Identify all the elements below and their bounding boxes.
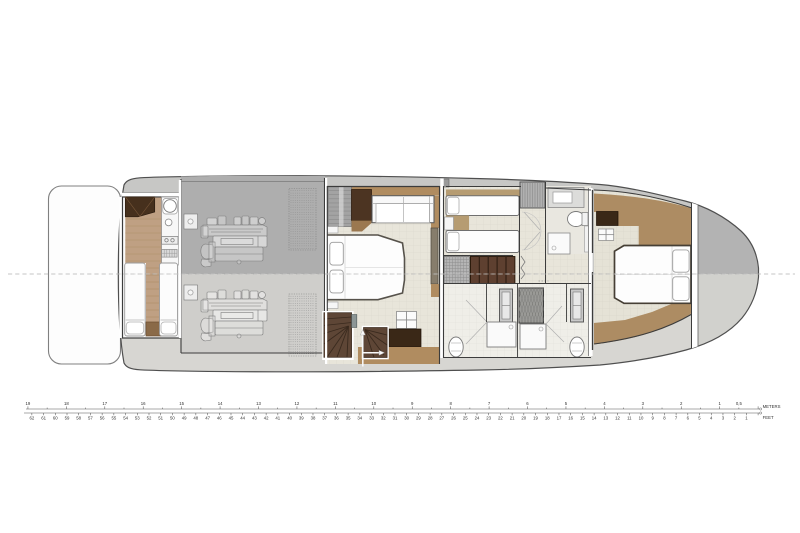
svg-text:34: 34 — [357, 416, 362, 421]
svg-text:26: 26 — [451, 416, 456, 421]
svg-text:13: 13 — [256, 401, 261, 406]
svg-text:33: 33 — [369, 416, 374, 421]
svg-text:52: 52 — [147, 416, 152, 421]
svg-text:48: 48 — [193, 416, 198, 421]
svg-text:53: 53 — [135, 416, 140, 421]
svg-text:44: 44 — [240, 416, 245, 421]
svg-text:METERS: METERS — [763, 404, 781, 409]
svg-text:61: 61 — [41, 416, 46, 421]
svg-text:12: 12 — [295, 401, 300, 406]
svg-text:51: 51 — [158, 416, 163, 421]
svg-text:19: 19 — [533, 416, 538, 421]
svg-text:37: 37 — [322, 416, 327, 421]
svg-text:29: 29 — [416, 416, 421, 421]
svg-text:42: 42 — [264, 416, 269, 421]
svg-text:18: 18 — [545, 416, 550, 421]
svg-text:17: 17 — [557, 416, 562, 421]
svg-text:20: 20 — [521, 416, 526, 421]
svg-text:41: 41 — [275, 416, 280, 421]
svg-text:58: 58 — [76, 416, 81, 421]
svg-text:27: 27 — [439, 416, 444, 421]
svg-text:28: 28 — [428, 416, 433, 421]
svg-text:39: 39 — [299, 416, 304, 421]
svg-text:36: 36 — [334, 416, 339, 421]
svg-text:38: 38 — [311, 416, 316, 421]
svg-text:45: 45 — [229, 416, 234, 421]
svg-text:46: 46 — [217, 416, 222, 421]
svg-text:17: 17 — [102, 401, 107, 406]
svg-text:56: 56 — [100, 416, 105, 421]
svg-text:18: 18 — [64, 401, 69, 406]
svg-text:32: 32 — [381, 416, 386, 421]
svg-text:25: 25 — [463, 416, 468, 421]
svg-text:19: 19 — [26, 401, 31, 406]
svg-text:15: 15 — [179, 401, 184, 406]
svg-text:50: 50 — [170, 416, 175, 421]
svg-text:15: 15 — [580, 416, 585, 421]
svg-text:62: 62 — [30, 416, 35, 421]
svg-text:10: 10 — [371, 401, 376, 406]
svg-text:47: 47 — [205, 416, 210, 421]
svg-text:16: 16 — [141, 401, 146, 406]
svg-text:59: 59 — [65, 416, 70, 421]
svg-text:14: 14 — [592, 416, 597, 421]
svg-text:40: 40 — [287, 416, 292, 421]
svg-text:14: 14 — [218, 401, 223, 406]
svg-text:11: 11 — [333, 401, 338, 406]
svg-text:16: 16 — [568, 416, 573, 421]
svg-text:49: 49 — [182, 416, 187, 421]
svg-text:21: 21 — [510, 416, 515, 421]
svg-text:11: 11 — [627, 416, 632, 421]
svg-text:54: 54 — [123, 416, 128, 421]
svg-text:30: 30 — [404, 416, 409, 421]
svg-text:35: 35 — [346, 416, 351, 421]
svg-text:0,5: 0,5 — [736, 401, 743, 406]
svg-text:22: 22 — [498, 416, 503, 421]
svg-text:12: 12 — [615, 416, 620, 421]
svg-text:57: 57 — [88, 416, 93, 421]
svg-text:FEET: FEET — [763, 415, 774, 420]
svg-text:13: 13 — [603, 416, 608, 421]
svg-text:24: 24 — [475, 416, 480, 421]
svg-text:23: 23 — [486, 416, 491, 421]
svg-text:60: 60 — [53, 416, 58, 421]
svg-text:55: 55 — [112, 416, 117, 421]
svg-text:43: 43 — [252, 416, 257, 421]
svg-text:31: 31 — [393, 416, 398, 421]
svg-text:10: 10 — [639, 416, 644, 421]
